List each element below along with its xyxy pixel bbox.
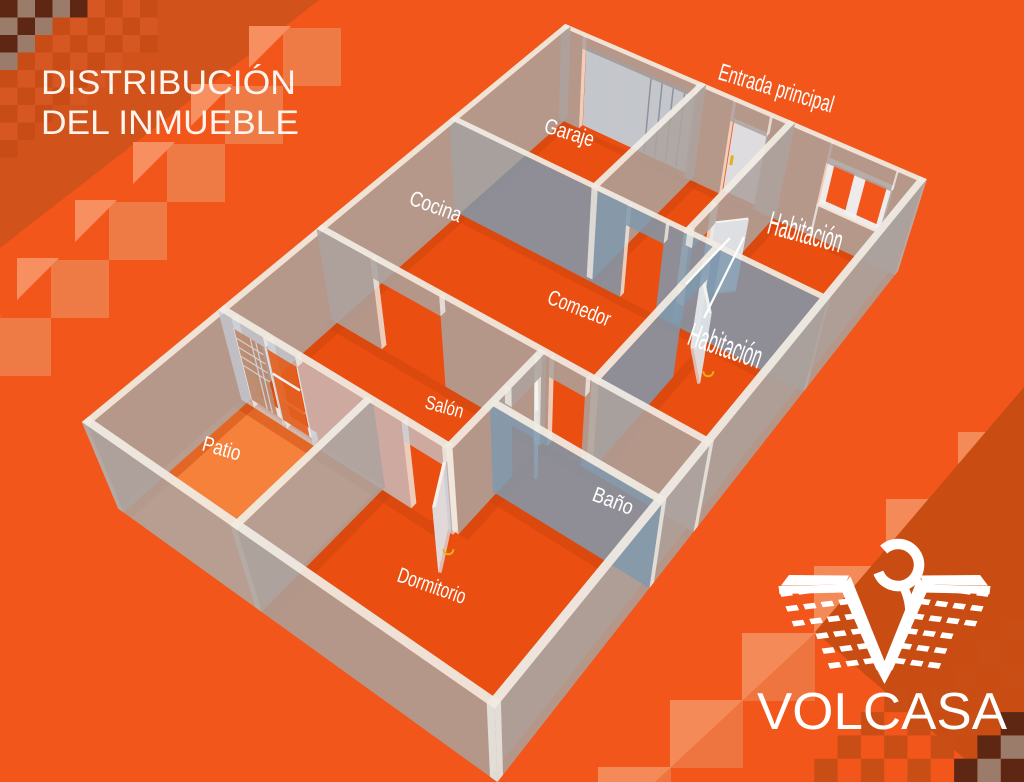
svg-text:DEL INMUEBLE: DEL INMUEBLE <box>41 104 299 142</box>
svg-text:DISTRIBUCIÓN: DISTRIBUCIÓN <box>41 64 296 102</box>
svg-text:VOLCASA: VOLCASA <box>757 683 1007 741</box>
